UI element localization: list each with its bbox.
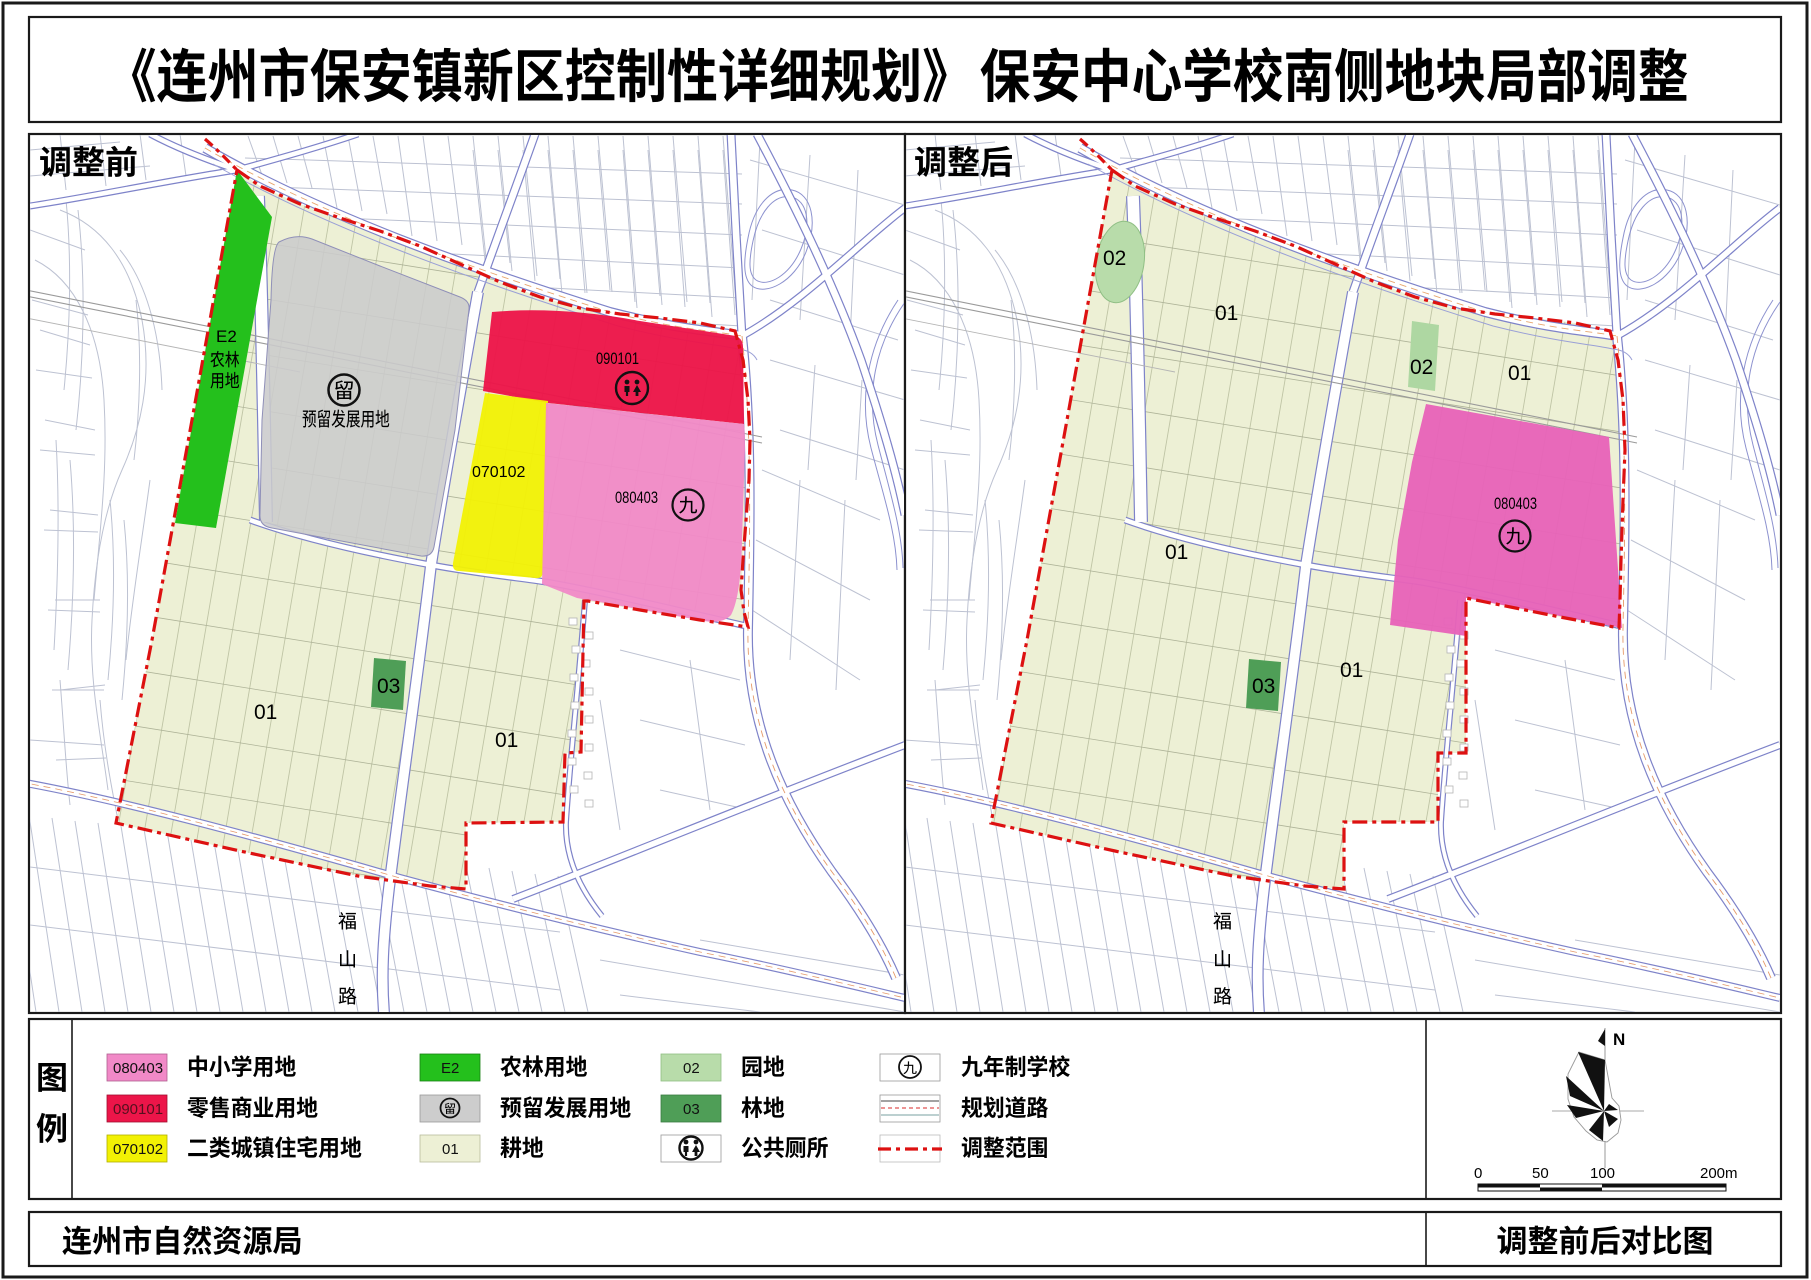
svg-text:01: 01 [1340,659,1363,682]
svg-text:080403: 080403 [113,1060,163,1077]
svg-text:02: 02 [683,1060,700,1077]
svg-text:N: N [1613,1030,1625,1049]
svg-text:03: 03 [1252,675,1275,698]
svg-text:03: 03 [683,1101,700,1118]
svg-text:02: 02 [1410,356,1433,379]
svg-text:090101: 090101 [596,349,639,368]
svg-text:070102: 070102 [472,464,525,481]
svg-text:080403: 080403 [1494,495,1537,513]
svg-text:070102: 070102 [113,1141,163,1158]
svg-text:200m: 200m [1700,1165,1738,1182]
svg-text:E2: E2 [441,1060,459,1077]
svg-text:100: 100 [1590,1165,1615,1182]
svg-text:01: 01 [1508,362,1531,385]
svg-text:01: 01 [495,729,518,752]
svg-text:0: 0 [1474,1165,1482,1182]
svg-text:01: 01 [1215,302,1238,325]
svg-text:01: 01 [1165,541,1188,564]
svg-text:03: 03 [377,675,400,698]
svg-text:090101: 090101 [113,1101,163,1118]
svg-text:02: 02 [1103,247,1126,270]
svg-text:080403: 080403 [615,489,658,507]
svg-text:01: 01 [254,701,277,724]
svg-text:01: 01 [442,1141,459,1158]
svg-text:E2: E2 [216,327,237,346]
svg-text:50: 50 [1532,1165,1549,1182]
